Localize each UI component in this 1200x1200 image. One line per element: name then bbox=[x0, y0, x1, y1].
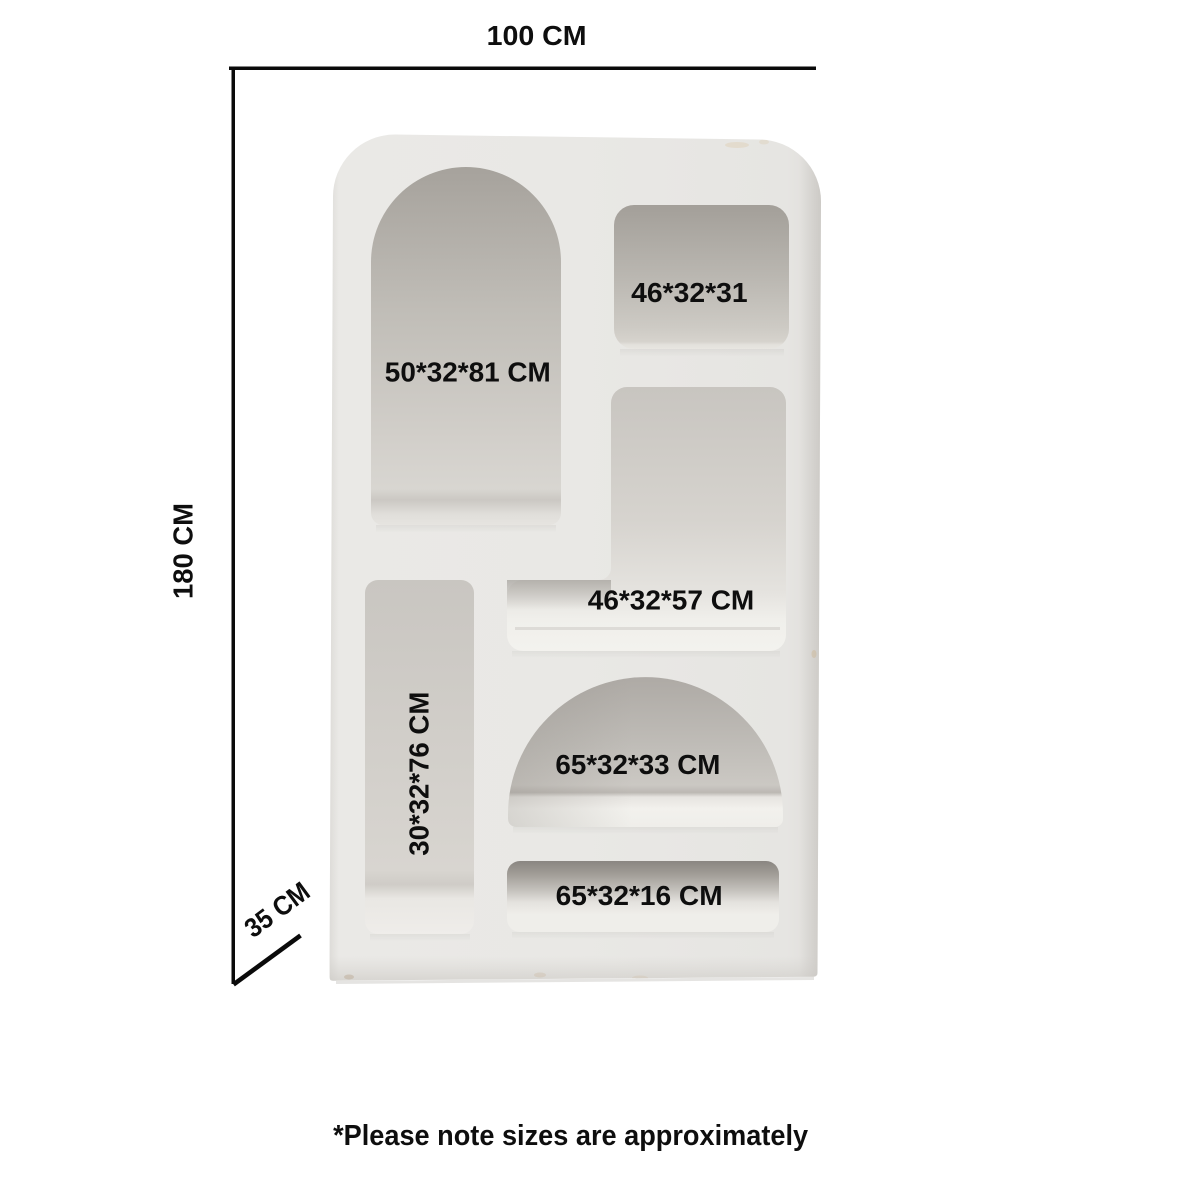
svg-text:65*32*16 CM: 65*32*16 CM bbox=[556, 880, 723, 911]
svg-text:*Please note sizes are approxi: *Please note sizes are approximately bbox=[333, 1120, 808, 1152]
svg-text:100 CM: 100 CM bbox=[487, 20, 587, 51]
svg-text:46*32*57 CM: 46*32*57 CM bbox=[588, 585, 755, 616]
svg-text:46*32*31: 46*32*31 bbox=[631, 277, 748, 308]
svg-text:50*32*81 CM: 50*32*81 CM bbox=[385, 356, 551, 387]
svg-text:180 CM: 180 CM bbox=[168, 503, 199, 599]
svg-text:30*32*76 CM: 30*32*76 CM bbox=[404, 692, 435, 856]
svg-text:65*32*33 CM: 65*32*33 CM bbox=[555, 749, 720, 780]
